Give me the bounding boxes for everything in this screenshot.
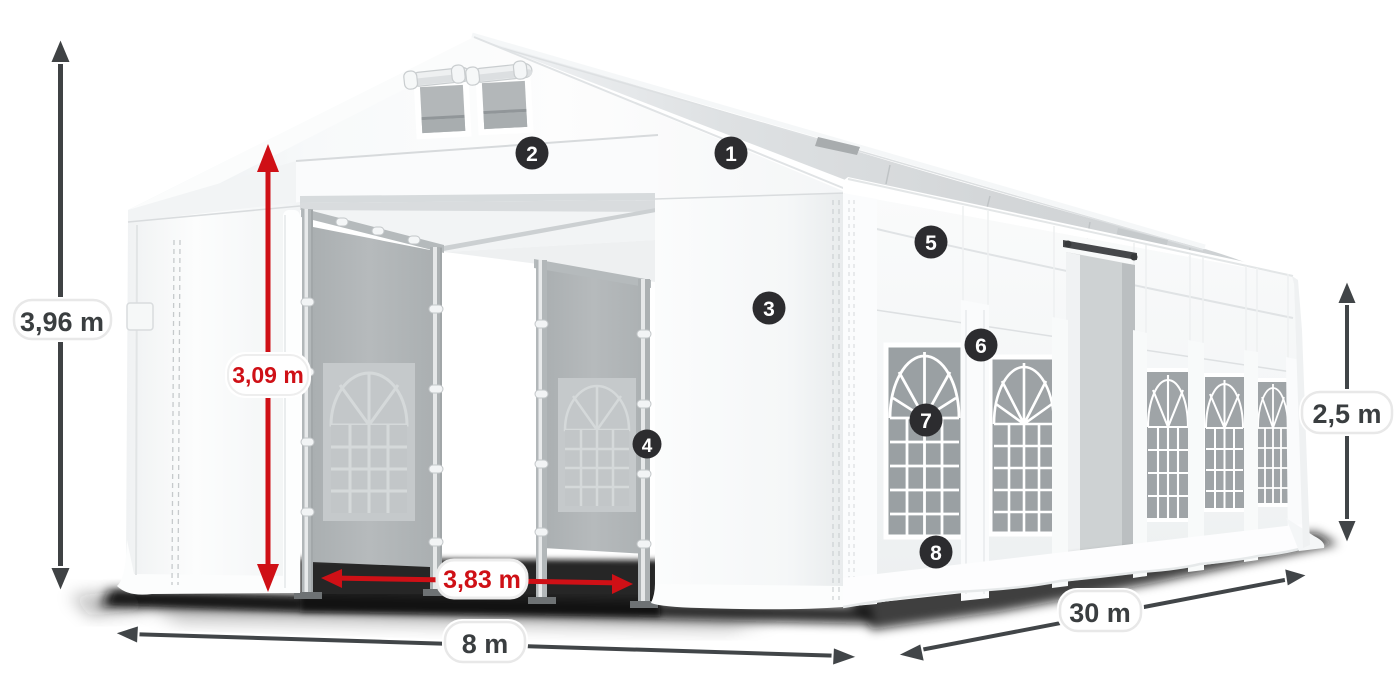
svg-text:2,5 m: 2,5 m	[1312, 399, 1381, 429]
svg-text:5: 5	[925, 232, 937, 255]
svg-text:3,83 m: 3,83 m	[443, 566, 521, 594]
svg-text:7: 7	[920, 410, 932, 433]
svg-text:8: 8	[930, 542, 942, 565]
svg-text:8 m: 8 m	[462, 629, 509, 659]
svg-text:3: 3	[763, 298, 775, 321]
svg-text:6: 6	[975, 335, 987, 358]
svg-text:30 m: 30 m	[1069, 598, 1131, 628]
svg-text:2: 2	[526, 143, 538, 166]
svg-text:3,96 m: 3,96 m	[20, 307, 104, 337]
svg-text:1: 1	[725, 143, 737, 166]
svg-text:4: 4	[642, 436, 653, 457]
svg-text:3,09 m: 3,09 m	[232, 362, 304, 388]
